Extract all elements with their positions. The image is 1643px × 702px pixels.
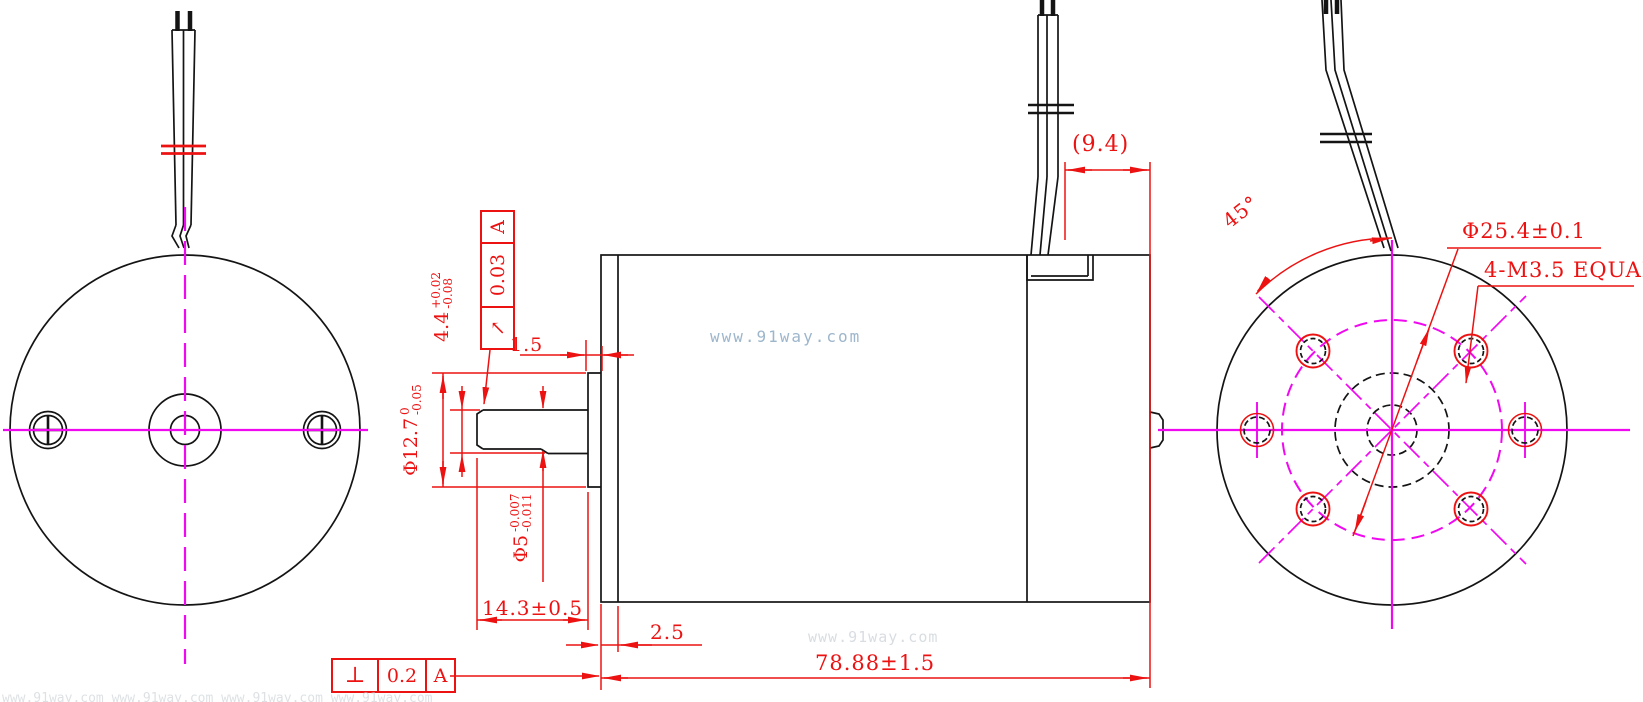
shaft (477, 410, 588, 454)
runout-symbol-icon: ↗ (482, 308, 513, 348)
dim-boss-diameter-main: Φ12.7 (400, 418, 422, 476)
runout-value: 0.03 (482, 244, 513, 308)
perpendicularity-symbol-icon: ⊥ (333, 660, 377, 691)
dim-shaft-flat: 4.4 +0.02 -0.08 (428, 267, 455, 347)
perpendicularity-datum: A (425, 660, 454, 691)
perpendicularity-value: 0.2 (377, 660, 425, 691)
terminal-block (1027, 255, 1093, 280)
side-lead-wire (1028, 0, 1074, 255)
runout-datum: A (482, 212, 513, 244)
watermark-center: www.91way.com (710, 327, 861, 346)
front-lead-wire (172, 11, 195, 248)
watermark-bottom-strip: www.91way.com www.91way.com www.91way.co… (2, 691, 432, 702)
dim-bolt-circle: Φ25.4±0.1 (1462, 219, 1586, 243)
runout-control-frame: ↗ 0.03 A (480, 210, 515, 350)
dim-front-step: 2.5 (650, 620, 685, 644)
dim-shaft-flat-tolerance: +0.02 -0.08 (430, 272, 454, 309)
rear-view (1158, 0, 1630, 629)
rear-lead-wire (1320, 0, 1398, 251)
rear-centerlines (1158, 240, 1630, 629)
dim-shaft-diameter-main: Φ5 (510, 535, 532, 563)
side-view (477, 0, 1163, 602)
dim-shaft-protrusion: 14.3±0.5 (482, 596, 583, 620)
dim-shaft-diameter: Φ5 -0.007 -0.011 (504, 478, 538, 578)
dim-wire-offset: (9.4) (1072, 132, 1129, 157)
dim-shaft-flat-main: 4.4 (431, 312, 453, 342)
dim-mount-holes: 4-M3.5 EQUAL (1484, 258, 1643, 282)
watermark-faint: www.91way.com (808, 628, 938, 646)
motor-drawing-page: (9.4) 45° Φ25.4±0.1 4-M3.5 EQUAL 1.5 14.… (0, 0, 1643, 702)
dim-shaft-diameter-tolerance: -0.007 -0.011 (509, 493, 533, 531)
dim-boss-diameter-tolerance: 0 -0.05 (399, 384, 423, 415)
drawing-canvas (0, 0, 1643, 702)
front-centerlines (3, 207, 368, 664)
perpendicularity-control-frame: ⊥ 0.2 A (331, 658, 456, 693)
dim-body-length: 78.88±1.5 (815, 651, 935, 675)
dim-boss-diameter: Φ12.7 0 -0.05 (396, 368, 426, 492)
